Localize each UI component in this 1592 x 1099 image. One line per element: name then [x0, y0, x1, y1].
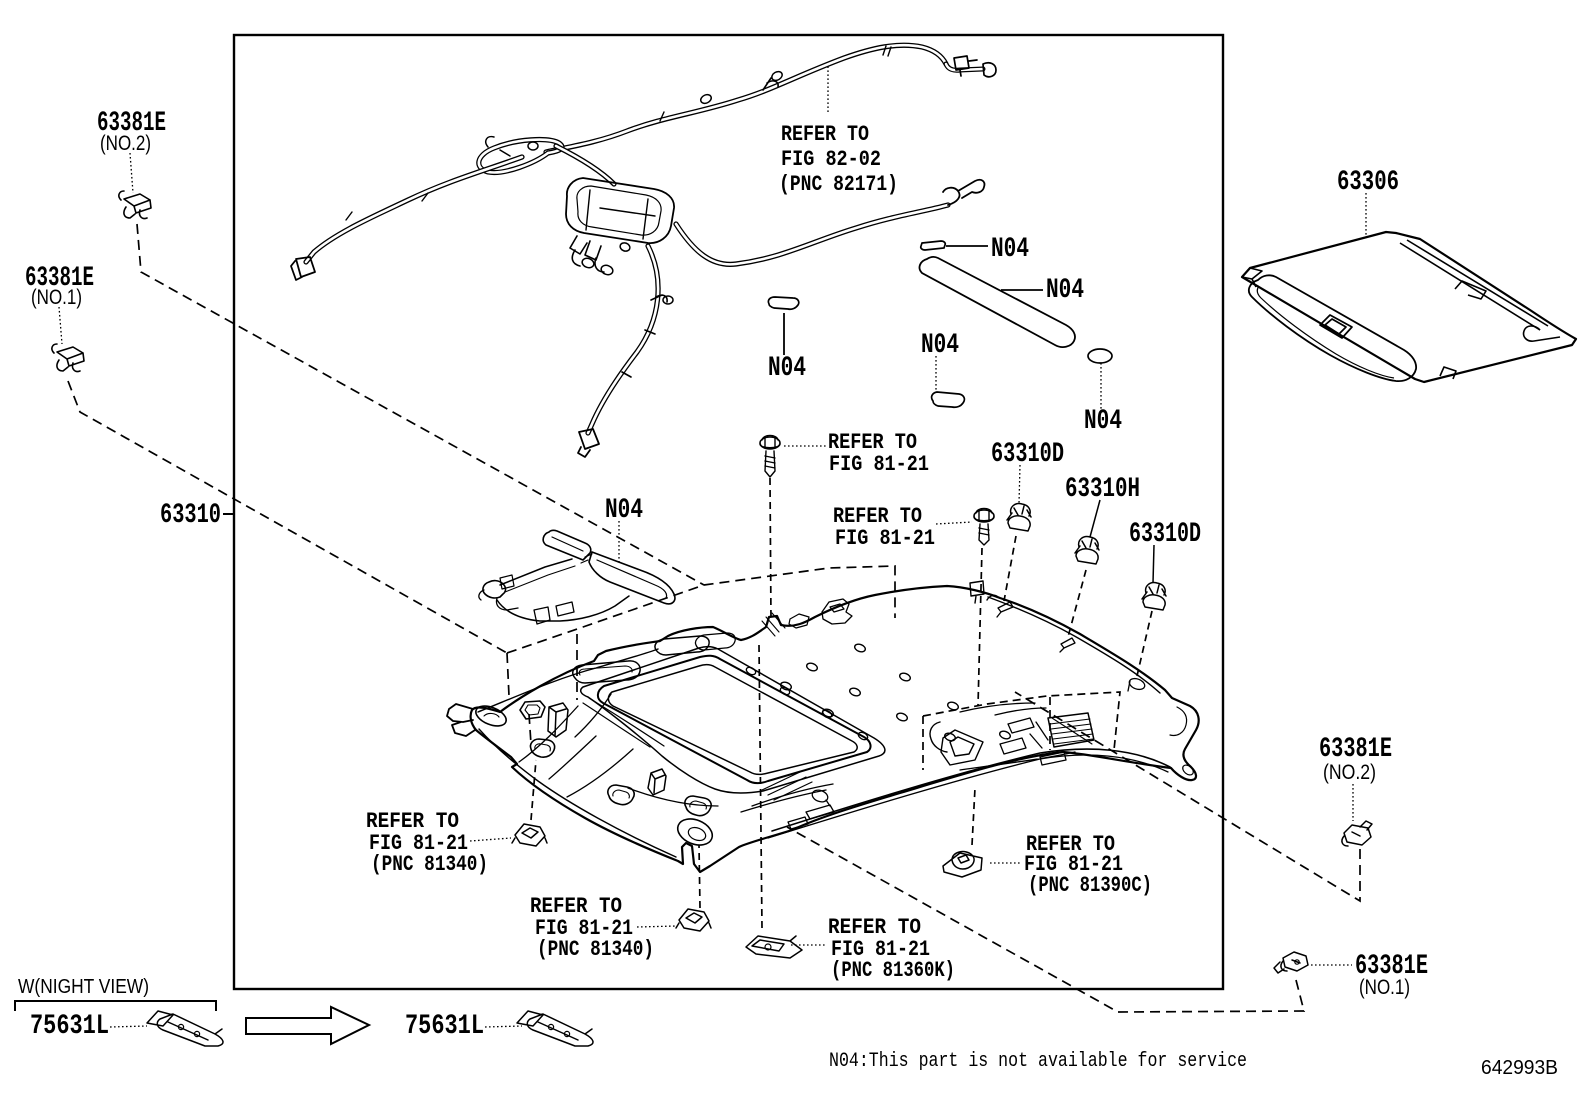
svg-text:REFER TO: REFER TO: [781, 122, 869, 147]
svg-text:FIG 82-02: FIG 82-02: [781, 147, 881, 172]
svg-text:W(NIGHT VIEW): W(NIGHT VIEW): [18, 976, 149, 998]
svg-text:75631L: 75631L: [405, 1011, 484, 1042]
svg-text:(PNC 81340): (PNC 81340): [371, 852, 488, 877]
svg-text:N04: N04: [1084, 406, 1122, 437]
svg-text:N04: N04: [768, 353, 806, 384]
svg-text:75631L: 75631L: [30, 1011, 109, 1042]
svg-text:N04: N04: [921, 330, 959, 361]
svg-text:FIG 81-21: FIG 81-21: [829, 452, 929, 477]
svg-text:642993B: 642993B: [1481, 1057, 1558, 1079]
svg-text:(PNC 81390C): (PNC 81390C): [1028, 873, 1152, 898]
svg-text:(NO.2): (NO.2): [1323, 761, 1376, 784]
svg-text:N04: N04: [605, 495, 643, 526]
svg-text:(NO.1): (NO.1): [31, 286, 82, 309]
svg-text:FIG 81-21: FIG 81-21: [835, 526, 935, 551]
svg-text:(NO.1): (NO.1): [1359, 976, 1410, 999]
svg-text:63310D: 63310D: [1129, 519, 1201, 550]
svg-text:(PNC 81360K): (PNC 81360K): [831, 958, 955, 983]
svg-text:63310D: 63310D: [991, 439, 1064, 470]
svg-text:N04: N04: [1046, 275, 1084, 306]
svg-text:63310: 63310: [160, 500, 221, 531]
svg-text:N04: N04: [991, 234, 1029, 265]
svg-text:N04:This part is not available: N04:This part is not available for servi…: [829, 1050, 1247, 1073]
svg-text:(PNC 82171): (PNC 82171): [779, 172, 898, 197]
svg-text:(PNC 81340): (PNC 81340): [537, 937, 654, 962]
svg-text:63310H: 63310H: [1065, 474, 1140, 505]
svg-text:(NO.2): (NO.2): [100, 132, 151, 155]
svg-text:63306: 63306: [1337, 167, 1399, 198]
